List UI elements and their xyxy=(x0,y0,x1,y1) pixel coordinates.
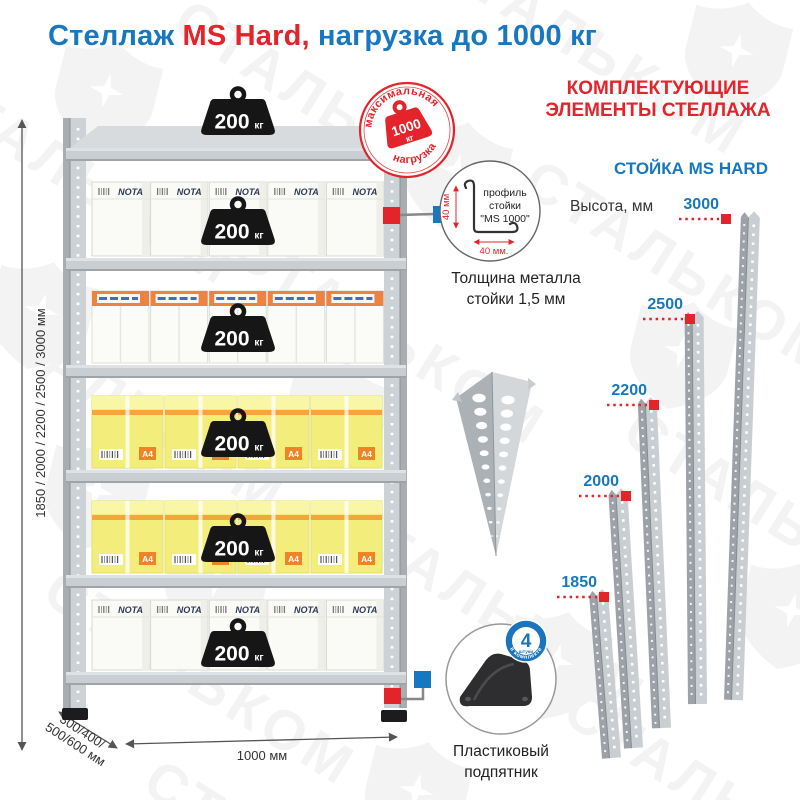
plastic-foot-left xyxy=(62,708,88,720)
decor xyxy=(318,182,325,256)
weight-value: 200 xyxy=(214,433,249,456)
decor xyxy=(66,159,406,161)
foot-caption-line1: Пластиковый xyxy=(416,741,586,762)
box-brand-label: NOTA xyxy=(118,187,143,197)
bracket-hole xyxy=(500,424,511,431)
profile-dim-horizontal: 40 мм. xyxy=(480,246,509,257)
callout-square-red-bottom xyxy=(384,688,401,704)
bracket-hole xyxy=(501,410,513,418)
weight-value: 200 xyxy=(214,328,249,351)
box-brand-label: NOTA xyxy=(353,605,378,615)
width-dimension-label: 1000 мм xyxy=(237,748,287,763)
post-height-1850: 1850 xyxy=(561,574,597,592)
decor xyxy=(345,396,349,468)
upright-post xyxy=(685,311,707,704)
title-highlight: MS Hard, xyxy=(182,20,309,52)
box-brand-label: NOTA xyxy=(118,605,143,615)
profile-caption-1: профиль xyxy=(483,187,527,199)
bracket-hole xyxy=(478,436,488,443)
decor xyxy=(66,586,406,588)
decor xyxy=(66,672,406,675)
weight-ring xyxy=(232,89,244,101)
foot-count-value: 4 xyxy=(521,631,532,652)
bracket-hole xyxy=(496,535,498,537)
decor xyxy=(172,449,196,460)
post-height-3000: 3000 xyxy=(683,196,719,214)
weight-unit: кг xyxy=(254,338,263,349)
foot-caption-line2: подпятник xyxy=(416,762,586,783)
weight-unit: кг xyxy=(254,443,263,454)
box-brand-label: NOTA xyxy=(177,605,202,615)
decor xyxy=(126,396,130,468)
post-section-title: СТОЙКА MS HARD xyxy=(580,159,800,179)
bracket-hole xyxy=(480,450,489,456)
weight-unit: кг xyxy=(254,653,263,664)
post-height-2500: 2500 xyxy=(647,296,683,314)
height-leader-square xyxy=(649,400,659,410)
profile-dim-vertical: 40 мм xyxy=(441,194,452,220)
bracket-hole xyxy=(482,464,490,469)
box-size-label: A4 xyxy=(288,554,299,564)
height-leader-square xyxy=(685,314,695,324)
box-brand-label: NOTA xyxy=(177,187,202,197)
bracket-hole xyxy=(500,437,510,444)
page-title: Стеллаж MS Hard, нагрузка до 1000 кг xyxy=(48,20,597,53)
weight-value: 200 xyxy=(214,111,249,134)
title-suffix: нагрузка до 1000 кг xyxy=(310,20,597,52)
components-header-line1: КОМПЛЕКТУЮЩИЕ xyxy=(538,78,778,100)
bracket-hole xyxy=(476,422,487,429)
plastic-foot-diagram: 4 штуки в комплекте xyxy=(446,620,556,734)
components-header-line2: ЭЛЕМЕНТЫ СТЕЛЛАЖА xyxy=(538,100,778,122)
thickness-note: Толщина металла стойки 1,5 мм xyxy=(431,268,601,310)
foot-count-badge: 4 штуки в комплекте xyxy=(505,620,547,662)
decor xyxy=(345,501,349,573)
height-leader-square xyxy=(621,491,631,501)
box-brand-label: NOTA xyxy=(235,187,260,197)
bracket-hole xyxy=(487,507,492,510)
decor xyxy=(66,575,406,578)
profile-caption-3: "MS 1000" xyxy=(480,213,530,225)
decor xyxy=(376,600,383,670)
decor xyxy=(66,470,406,473)
box-size-label: A4 xyxy=(142,554,153,564)
bracket-hole xyxy=(496,521,500,523)
box-size-label: A4 xyxy=(142,449,153,459)
decor xyxy=(748,211,760,217)
weight-unit: кг xyxy=(254,548,263,559)
height-leader-square xyxy=(599,592,609,602)
height-axis-label: Высота, мм xyxy=(570,198,653,216)
height-leader-square xyxy=(721,214,731,224)
decor xyxy=(126,501,130,573)
decor xyxy=(66,683,406,685)
weight-unit: кг xyxy=(254,121,263,132)
decor xyxy=(318,600,325,670)
decor xyxy=(66,148,406,151)
plastic-foot-right xyxy=(381,710,407,722)
box-brand-label: NOTA xyxy=(294,187,319,197)
decor xyxy=(741,212,749,217)
bracket-hole xyxy=(472,394,485,403)
thickness-note-line1: Толщина металла xyxy=(431,268,601,289)
foot-caption: Пластиковый подпятник xyxy=(416,741,586,783)
box-size-label: A4 xyxy=(361,554,372,564)
decor xyxy=(66,269,406,271)
decor xyxy=(142,182,149,256)
height-dimension-label: 1850 / 2000 / 2200 / 2500 / 3000 мм xyxy=(33,308,48,517)
weight-unit: кг xyxy=(254,231,263,242)
post-height-2200: 2200 xyxy=(611,382,647,400)
decor xyxy=(376,182,383,256)
box-brand-label: NOTA xyxy=(235,605,260,615)
callout-square-red-top xyxy=(383,207,400,224)
title-prefix: Стеллаж xyxy=(48,20,182,52)
weight-value: 200 xyxy=(214,221,249,244)
bracket-hole xyxy=(491,535,493,537)
post-profile-diagram: 40 мм 40 мм. профиль стойки "MS 1000" xyxy=(440,161,540,261)
decor xyxy=(142,600,149,670)
decor xyxy=(66,376,406,378)
angle-post-3d xyxy=(452,372,536,556)
box-size-label: A4 xyxy=(288,449,299,459)
bracket-hole xyxy=(485,493,491,497)
profile-caption-2: стойки xyxy=(489,200,521,212)
decor xyxy=(172,554,196,565)
weight-value: 200 xyxy=(214,538,249,561)
decor xyxy=(272,501,276,573)
post-height-2000: 2000 xyxy=(583,473,619,491)
thickness-note-line2: стойки 1,5 мм xyxy=(431,289,601,310)
callout-square-blue-bottom xyxy=(414,671,431,688)
decor xyxy=(199,396,203,468)
decor xyxy=(66,365,406,368)
components-header: КОМПЛЕКТУЮЩИЕ ЭЛЕМЕНТЫ СТЕЛЛАЖА xyxy=(538,78,778,122)
bracket-hole xyxy=(489,521,493,523)
bracket-hole xyxy=(474,408,486,416)
box-size-label: A4 xyxy=(361,449,372,459)
bracket-hole xyxy=(497,493,503,497)
bracket-hole xyxy=(498,479,505,483)
decor xyxy=(199,501,203,573)
decor xyxy=(66,258,406,261)
bracket-hole xyxy=(497,507,502,510)
bracket-hole xyxy=(501,396,514,405)
box-brand-label: NOTA xyxy=(294,605,319,615)
weight-value: 200 xyxy=(214,643,249,666)
poster: СТАЛЬКОМСТАЛЬКОМСТАЛЬКОМСТАЛЬКОМСТАЛЬКОМ… xyxy=(0,0,800,800)
decor xyxy=(66,481,406,483)
bracket-hole xyxy=(499,451,508,457)
bracket-hole xyxy=(499,465,507,470)
bracket-hole xyxy=(483,479,490,483)
decor xyxy=(272,396,276,468)
box-brand-label: NOTA xyxy=(353,187,378,197)
